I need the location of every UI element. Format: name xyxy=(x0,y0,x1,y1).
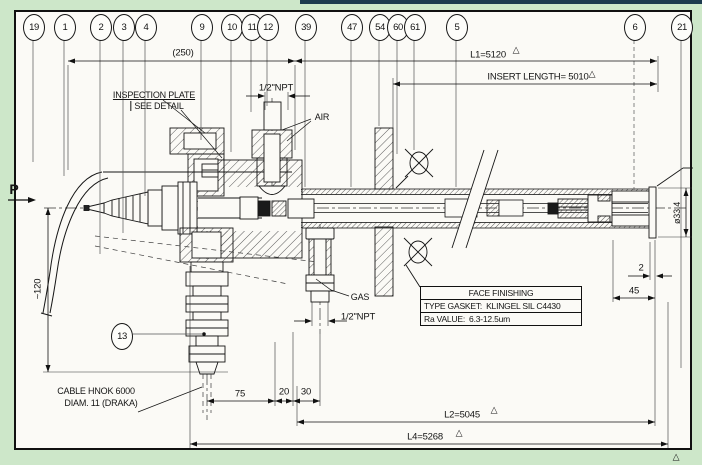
revision-triangle-icon: △ xyxy=(589,69,596,80)
balloon-number: 21 xyxy=(677,22,687,33)
balloon-number: 5 xyxy=(455,22,460,33)
balloon-47: 47 xyxy=(341,14,363,41)
dim-75: 75 xyxy=(235,389,245,400)
balloon-number: 4 xyxy=(144,22,149,33)
balloon-number: 12 xyxy=(263,22,273,33)
table-row: TYPE GASKET: KLINGEL SIL C4430 xyxy=(421,299,581,312)
see-detail-label: SEE DETAIL xyxy=(130,101,183,111)
gasket-type-label: TYPE GASKET: xyxy=(424,301,482,311)
revision-triangle-icon: △ xyxy=(673,452,680,463)
balloon-number: 13 xyxy=(117,331,127,342)
balloon-number: 9 xyxy=(200,22,205,33)
cable-note-line1: CABLE HNOK 6000 xyxy=(57,386,135,396)
dim-20: 20 xyxy=(279,387,289,398)
dim-diameter: ø33.4 xyxy=(672,202,682,224)
balloon-4: 4 xyxy=(135,14,157,41)
dim-2: 2 xyxy=(638,263,643,274)
balloon-19: 19 xyxy=(23,14,45,41)
dim-l4: L4=5268 xyxy=(407,432,443,443)
inspection-plate-label: INSPECTION PLATE xyxy=(113,90,195,100)
balloon-number: 60 xyxy=(393,22,403,33)
cable-note-line2: DIAM. 11 (DRAKA) xyxy=(64,398,137,408)
revision-triangle-icon: △ xyxy=(456,428,463,439)
balloon-number: 6 xyxy=(633,22,638,33)
dim-l2: L2=5045 xyxy=(444,410,480,421)
ra-value-value: 6.3-12.5um xyxy=(469,314,510,324)
table-row: Ra VALUE: 6.3-12.5um xyxy=(421,312,581,325)
balloon-3: 3 xyxy=(113,14,135,41)
dim-30: 30 xyxy=(301,387,311,398)
gasket-type-value: KLINGEL SIL C4430 xyxy=(486,301,560,311)
balloon-number: 3 xyxy=(122,22,127,33)
balloon-number: 61 xyxy=(410,22,420,33)
dim-250: (250) xyxy=(172,48,193,59)
balloon-number: 39 xyxy=(301,22,311,33)
balloon-39: 39 xyxy=(295,14,317,41)
balloon-number: 19 xyxy=(29,22,39,33)
dim-approx-120: ~120 xyxy=(33,279,44,300)
air-label: AIR xyxy=(315,112,329,122)
balloon-6: 6 xyxy=(624,14,646,41)
balloon-5: 5 xyxy=(446,14,468,41)
dim-l1: L1=5120 xyxy=(470,50,506,61)
balloon-13: 13 xyxy=(111,323,133,350)
revision-triangle-icon: △ xyxy=(491,405,498,416)
balloon-61: 61 xyxy=(404,14,426,41)
face-finishing-table: FACE FINISHING TYPE GASKET: KLINGEL SIL … xyxy=(420,286,582,326)
balloon-number: 1 xyxy=(63,22,68,33)
dim-45: 45 xyxy=(629,286,639,297)
balloon-1: 1 xyxy=(54,14,76,41)
revision-triangle-icon: △ xyxy=(513,45,520,56)
balloon-number: 47 xyxy=(347,22,357,33)
gas-label: GAS xyxy=(351,292,369,302)
table-title: FACE FINISHING xyxy=(421,287,581,299)
balloon-number: 54 xyxy=(375,22,385,33)
flow-direction-label: P xyxy=(9,181,18,197)
dim-insert-length: INSERT LENGTH= 5010 xyxy=(487,72,588,83)
balloon-21: 21 xyxy=(671,14,693,41)
balloon-9: 9 xyxy=(191,14,213,41)
ra-value-label: Ra VALUE: xyxy=(424,314,465,324)
npt-top-label: 1/2"NPT xyxy=(259,83,293,94)
npt-bottom-label: 1/2"NPT xyxy=(341,312,375,323)
balloon-number: 11 xyxy=(247,22,256,33)
technical-drawing-sheet: 19 1 2 3 4 9 10 11 12 39 47 54 60 61 5 6… xyxy=(0,0,702,465)
balloon-number: 10 xyxy=(227,22,237,33)
balloon-12: 12 xyxy=(257,14,279,41)
balloon-number: 2 xyxy=(99,22,104,33)
balloon-2: 2 xyxy=(90,14,112,41)
balloon-10: 10 xyxy=(221,14,243,41)
